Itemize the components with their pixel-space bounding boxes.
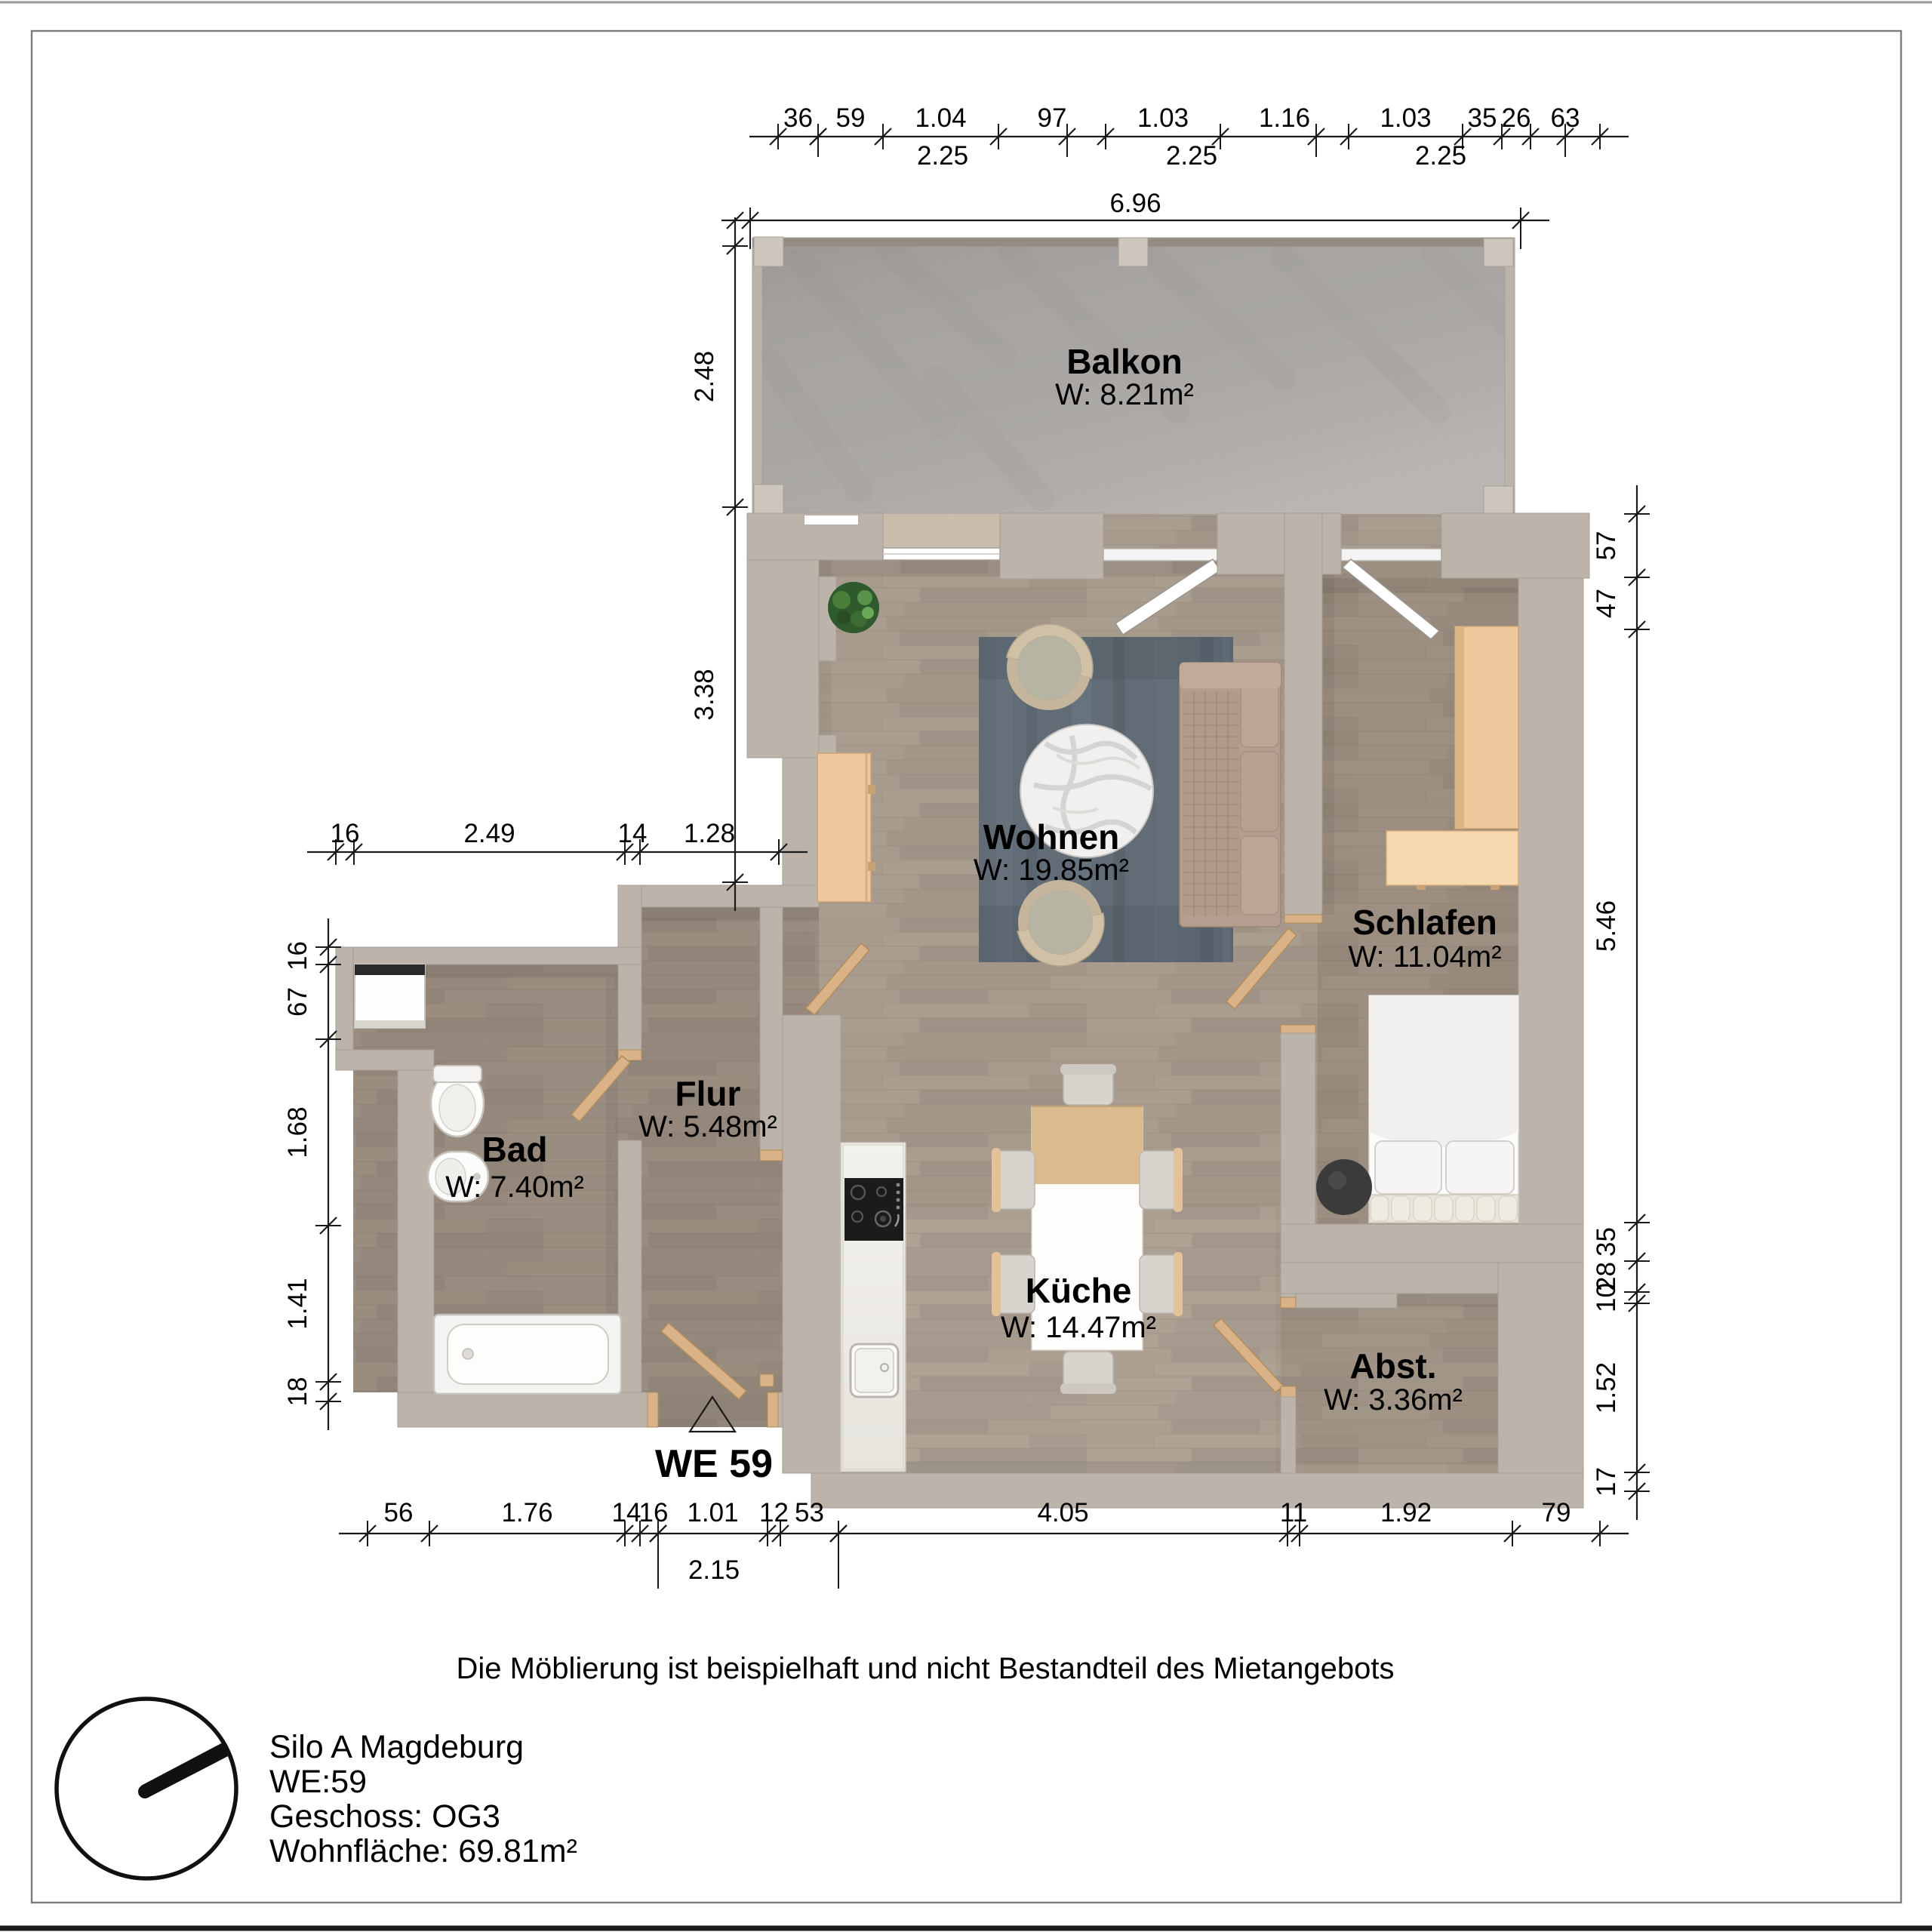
- svg-text:W: 8.21m²: W: 8.21m²: [1055, 378, 1194, 411]
- svg-text:1.52: 1.52: [1592, 1362, 1621, 1414]
- svg-text:1.92: 1.92: [1380, 1498, 1432, 1527]
- svg-text:Bad: Bad: [482, 1130, 548, 1169]
- svg-text:W: 19.85m²: W: 19.85m²: [974, 854, 1129, 887]
- svg-text:1.01: 1.01: [687, 1498, 738, 1527]
- svg-text:16: 16: [283, 941, 312, 971]
- svg-text:1.41: 1.41: [283, 1278, 312, 1329]
- svg-text:1.76: 1.76: [501, 1498, 552, 1527]
- svg-text:79: 79: [1542, 1498, 1571, 1527]
- svg-text:67: 67: [283, 987, 312, 1017]
- svg-text:Schlafen: Schlafen: [1352, 903, 1497, 942]
- svg-text:Die Möblierung ist beispielhaf: Die Möblierung ist beispielhaft und nich…: [457, 1652, 1395, 1685]
- svg-text:2.15: 2.15: [688, 1555, 740, 1585]
- svg-text:11: 11: [1280, 1498, 1307, 1527]
- svg-text:97: 97: [1038, 103, 1067, 133]
- svg-text:2.25: 2.25: [917, 141, 968, 171]
- svg-text:26: 26: [1502, 103, 1531, 133]
- svg-text:1.28: 1.28: [684, 819, 735, 848]
- svg-text:6.96: 6.96: [1109, 189, 1161, 218]
- svg-text:35: 35: [1468, 103, 1497, 133]
- svg-text:2.25: 2.25: [1166, 141, 1217, 171]
- svg-text:59: 59: [836, 103, 866, 133]
- svg-text:5.46: 5.46: [1592, 900, 1621, 952]
- svg-text:Wohnfläche: 69.81m²: Wohnfläche: 69.81m²: [269, 1833, 577, 1869]
- svg-text:1.04: 1.04: [915, 103, 966, 133]
- svg-text:47: 47: [1592, 589, 1621, 618]
- svg-text:53: 53: [795, 1498, 824, 1527]
- svg-text:10: 10: [1592, 1283, 1621, 1312]
- svg-text:W: 5.48m²: W: 5.48m²: [638, 1110, 777, 1143]
- svg-text:2.48: 2.48: [690, 351, 719, 402]
- svg-text:18: 18: [283, 1377, 312, 1407]
- svg-text:16: 16: [639, 1498, 669, 1527]
- svg-text:Wohnen: Wohnen: [983, 817, 1120, 857]
- svg-text:W: 7.40m²: W: 7.40m²: [445, 1171, 584, 1204]
- svg-text:W: 3.36m²: W: 3.36m²: [1324, 1383, 1463, 1417]
- svg-text:35: 35: [1592, 1227, 1621, 1257]
- svg-text:Silo A Magdeburg: Silo A Magdeburg: [269, 1729, 524, 1765]
- svg-text:Abst.: Abst.: [1350, 1346, 1437, 1386]
- svg-text:16: 16: [331, 819, 360, 848]
- svg-text:WE 59: WE 59: [655, 1442, 773, 1486]
- svg-text:WE:59: WE:59: [269, 1764, 367, 1800]
- svg-text:4.05: 4.05: [1037, 1498, 1088, 1527]
- svg-text:56: 56: [384, 1498, 414, 1527]
- svg-text:Geschoss: OG3: Geschoss: OG3: [269, 1798, 500, 1835]
- svg-text:36: 36: [783, 103, 813, 133]
- svg-text:1.03: 1.03: [1137, 103, 1189, 133]
- svg-text:17: 17: [1592, 1467, 1621, 1497]
- svg-text:Flur: Flur: [675, 1074, 741, 1113]
- svg-text:3.38: 3.38: [690, 669, 719, 720]
- svg-text:Balkon: Balkon: [1066, 342, 1182, 381]
- svg-text:14: 14: [612, 1498, 641, 1527]
- svg-text:Küche: Küche: [1026, 1271, 1132, 1310]
- svg-text:14: 14: [618, 819, 648, 848]
- svg-text:12: 12: [759, 1498, 789, 1527]
- svg-text:1.16: 1.16: [1259, 103, 1310, 133]
- svg-text:2.49: 2.49: [463, 819, 515, 848]
- svg-text:W: 11.04m²: W: 11.04m²: [1348, 940, 1501, 974]
- svg-text:W: 14.47m²: W: 14.47m²: [1001, 1311, 1156, 1344]
- svg-text:57: 57: [1592, 531, 1621, 561]
- svg-text:2.25: 2.25: [1415, 141, 1466, 171]
- svg-text:1.68: 1.68: [283, 1106, 312, 1158]
- svg-text:1.03: 1.03: [1380, 103, 1431, 133]
